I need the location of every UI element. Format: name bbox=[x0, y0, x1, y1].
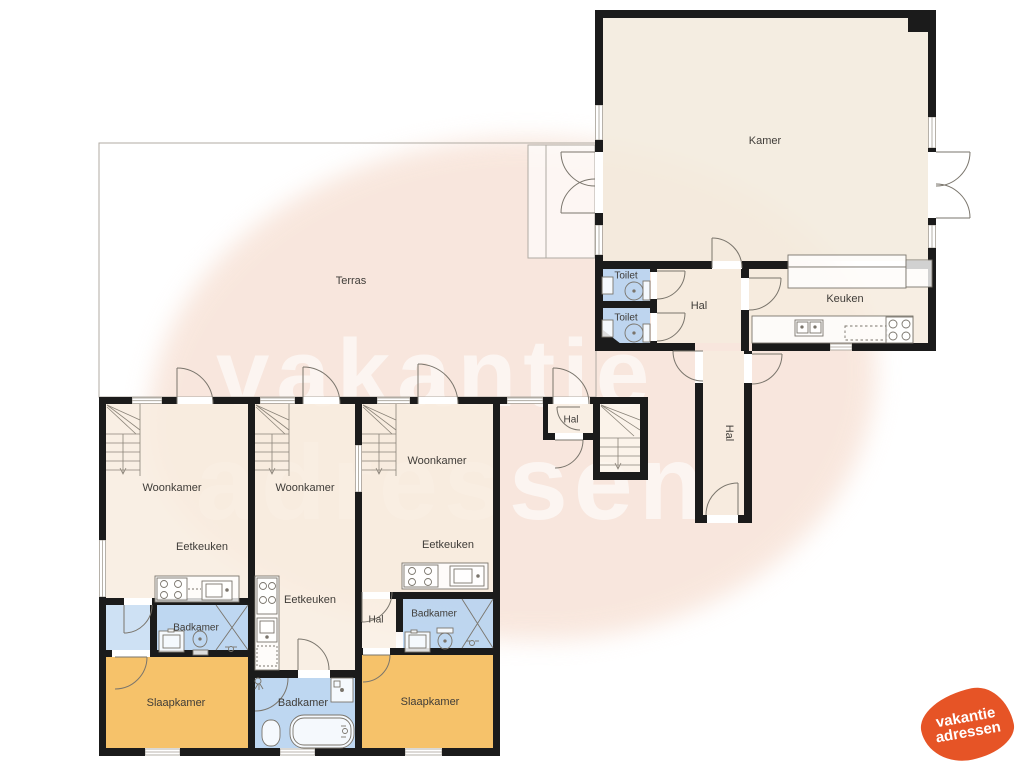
room-label-unit3-woonkamer: Woonkamer bbox=[407, 455, 466, 467]
washbasin-icon bbox=[262, 720, 280, 746]
room-label-unit2-eetkeuken: Eetkeuken bbox=[284, 594, 336, 606]
kitchen-unit3 bbox=[402, 563, 488, 589]
room-fills bbox=[106, 18, 928, 748]
room-label-unit3-badkamer: Badkamer bbox=[411, 609, 457, 620]
room-label-toilet1: Toilet bbox=[614, 271, 637, 282]
terrace-outline bbox=[99, 143, 596, 397]
room-label-keuken: Keuken bbox=[826, 293, 863, 305]
floorplan-page: vakantie adressen bbox=[0, 0, 1024, 768]
room-label-unit2-badkamer: Badkamer bbox=[278, 697, 328, 709]
room-label-hal-verdieping: Hal bbox=[723, 425, 735, 442]
room-label-unit1-slaapkamer: Slaapkamer bbox=[147, 697, 206, 709]
room-label-unit3-hal: Hal bbox=[368, 615, 383, 626]
room-label-terras: Terras bbox=[336, 275, 367, 287]
room-label-unit1-badkamer: Badkamer bbox=[173, 623, 219, 634]
room-label-unit1-woonkamer: Woonkamer bbox=[142, 482, 201, 494]
room-label-unit1-eetkeuken: Eetkeuken bbox=[176, 541, 228, 553]
unit1-closet bbox=[106, 605, 150, 650]
logo-text: vakantie adressen bbox=[932, 705, 1002, 746]
sink-icon bbox=[602, 277, 613, 294]
kitchen-keuken bbox=[752, 316, 913, 343]
room-label-hal-entree: Hal bbox=[563, 415, 578, 426]
room-label-unit3-slaapkamer: Slaapkamer bbox=[401, 696, 460, 708]
room-label-unit2-woonkamer: Woonkamer bbox=[275, 482, 334, 494]
kitchen-unit2 bbox=[255, 576, 279, 670]
unit1-main-room bbox=[106, 404, 248, 598]
bar-counter bbox=[788, 255, 932, 288]
room-label-kamer: Kamer bbox=[749, 135, 781, 147]
room-label-unit3-eetkeuken: Eetkeuken bbox=[422, 539, 474, 551]
floorplan-canvas bbox=[0, 0, 1024, 768]
room-label-hal-boven: Hal bbox=[691, 300, 708, 312]
sink-icon bbox=[602, 320, 613, 337]
bathtub-icon bbox=[290, 715, 354, 748]
kitchen-unit1 bbox=[155, 576, 239, 602]
room-label-toilet2: Toilet bbox=[614, 313, 637, 324]
